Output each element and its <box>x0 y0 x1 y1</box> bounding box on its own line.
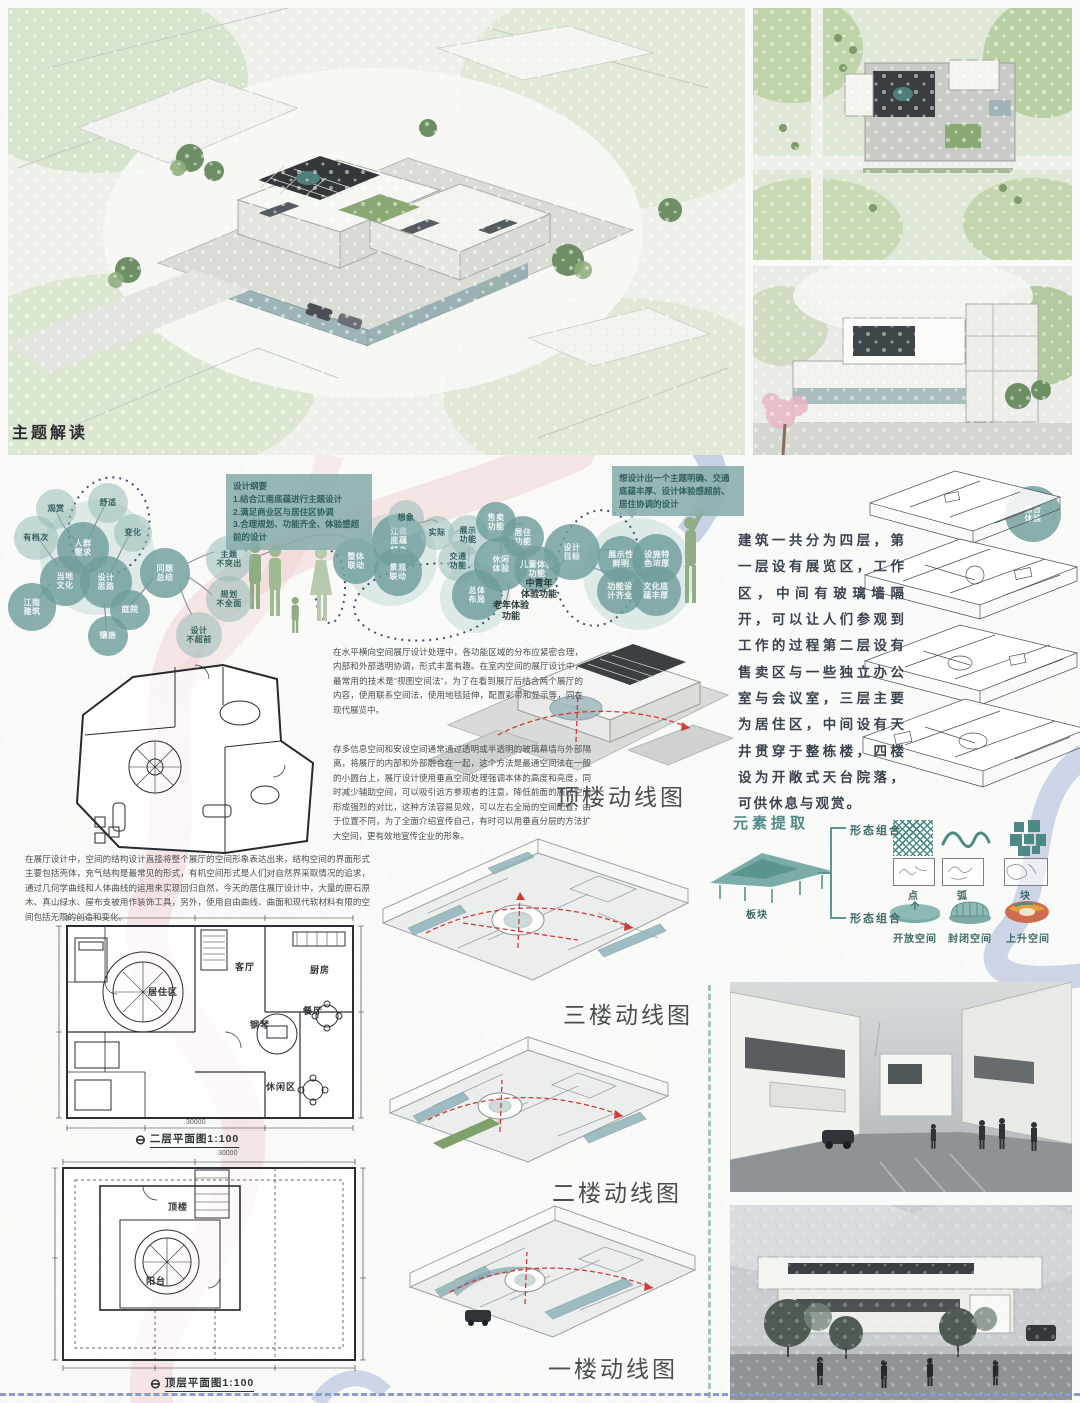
form-combo-bottom-label: 形态组合 <box>850 910 902 926</box>
space-label-rising: 上升空间 <box>1006 930 1050 945</box>
bubble-imagine: 想象 <box>388 500 424 536</box>
third-circulation-label: 三楼动线图 <box>563 996 693 1030</box>
caption-text: 顶层平面图1:100 <box>165 1375 254 1392</box>
roof-circulation-label: 顶楼动线图 <box>556 778 686 812</box>
room-label-living-room: 客厅 <box>235 960 255 973</box>
design-outline-note: 设计纲要 1.结合江南底蕴进行主题设计 2.满足商业区与居住区协调 3.合理规划… <box>226 474 372 550</box>
bubble-problem: 设计 不超前 <box>176 612 222 658</box>
second-floor-circulation-axon <box>378 1028 678 1178</box>
shape-label-dot: 点 <box>908 887 919 902</box>
bubble-quality: 文化底 蕴丰厚 <box>631 566 681 616</box>
exhibit-note-a: 在水平横向空间展厅设计处理中，各功能区域的分布应紧密合理，内部和外部透明协调，形… <box>333 645 583 717</box>
space-label-closed: 封闭空间 <box>948 930 992 945</box>
exhibit-note-b: 存多信息空间和安设空间通常通过透明或半透明的玻璃幕墙与外部隔离，将展厅的内部和外… <box>333 742 591 843</box>
building-intro-paragraph: 建筑一共分为四层，第一层设有展览区，工作区，中间有玻璃墙隔开，可以让人们参观到工… <box>738 528 906 817</box>
second-floor-plan-caption: ⊖ 二层平面图1:100 <box>135 1131 239 1148</box>
caption-text: 二层平面图1:100 <box>150 1131 239 1148</box>
top-floor-plan <box>45 1158 370 1376</box>
bracket-tick-top <box>830 827 846 829</box>
bubble-problem-summary: 问题 总结 <box>140 548 190 598</box>
shape-label-arc: 弧 <box>957 887 968 902</box>
render-front-elevation <box>730 1205 1072 1400</box>
canopy-plate-icon <box>700 845 840 905</box>
bubble-problem: 规划 不全面 <box>206 576 252 622</box>
label-mid-youth: 中青年 体验功能 <box>508 578 570 600</box>
element-extraction-title: 元素提取 <box>733 812 809 833</box>
room-label-kitchen: 厨房 <box>310 963 330 976</box>
render-aerial-axonometric <box>8 8 745 455</box>
bracket-tick-bottom <box>830 917 846 919</box>
second-circulation-label: 二楼动线图 <box>552 1174 682 1208</box>
bracket-line <box>830 827 832 919</box>
room-label-leisure: 休闲区 <box>266 1080 296 1093</box>
exhibition-floor-plan <box>55 655 340 860</box>
render-perspective <box>753 266 1072 455</box>
render-street-perspective <box>730 982 1072 1192</box>
exhibit-note-c: 在展厅设计中，空间的结构设计直接将整个展厅的空间形象表达出来，结构空间的界面形式… <box>25 852 370 924</box>
arc-pattern-icon <box>941 826 991 852</box>
space-label-open: 开放空间 <box>893 930 937 945</box>
presentation-board: 主题解读 <box>0 0 1080 1403</box>
bracket-tick-mid <box>818 872 830 874</box>
room-label-dining: 餐厅 <box>303 1004 323 1017</box>
bubble-need: 有档次 <box>14 516 58 560</box>
bubble-design-goal: 设计 目标 <box>544 524 600 580</box>
design-goal-note: 想设计出一个主题明确、交通底蕴丰厚、设计体验感超前、居住协调的设计 <box>612 466 744 516</box>
first-circulation-label: 一楼动线图 <box>548 1350 678 1384</box>
scale-symbol: ⊖ <box>150 1376 161 1392</box>
third-floor-circulation-axon <box>368 828 698 1013</box>
form-combo-top-label: 形态组合 <box>850 822 902 838</box>
top-floor-plan-caption: ⊖ 顶层平面图1:100 <box>150 1375 254 1392</box>
first-floor-circulation-axon <box>395 1192 705 1352</box>
section-title: 主题解读 <box>12 419 88 443</box>
plate-label: 板块 <box>746 906 768 921</box>
shape-label-block: 块 <box>1020 887 1031 902</box>
room-label-living-zone: 居住区 <box>148 985 178 998</box>
block-pattern-icon <box>1006 818 1050 858</box>
second-floor-plan <box>45 912 370 1144</box>
bubble-jiangnan-arch: 江南 建筑 <box>8 583 56 631</box>
plan2f-dim: 30000 <box>186 1119 205 1126</box>
render-site-plan <box>753 8 1072 260</box>
room-label-piano: 钢琴 <box>250 1018 270 1031</box>
room-label-roof: 顶楼 <box>168 1200 188 1213</box>
scale-symbol: ⊖ <box>135 1132 146 1148</box>
bubble-inlay: 镶嵌 <box>88 616 128 656</box>
bubble-need: 变化 <box>114 514 152 552</box>
closed-space-icon <box>947 896 993 926</box>
plantop-dim: 30000 <box>218 1150 237 1157</box>
sketch-scribbles <box>893 858 1048 884</box>
vertical-dashed-divider <box>708 985 711 1398</box>
bubble-landscape-linkage: 景观 联动 <box>374 548 422 596</box>
room-label-balcony: 阳台 <box>146 1274 166 1287</box>
label-elderly: 老年体验 功能 <box>482 600 540 622</box>
bottom-dashed-border <box>0 1393 1080 1396</box>
